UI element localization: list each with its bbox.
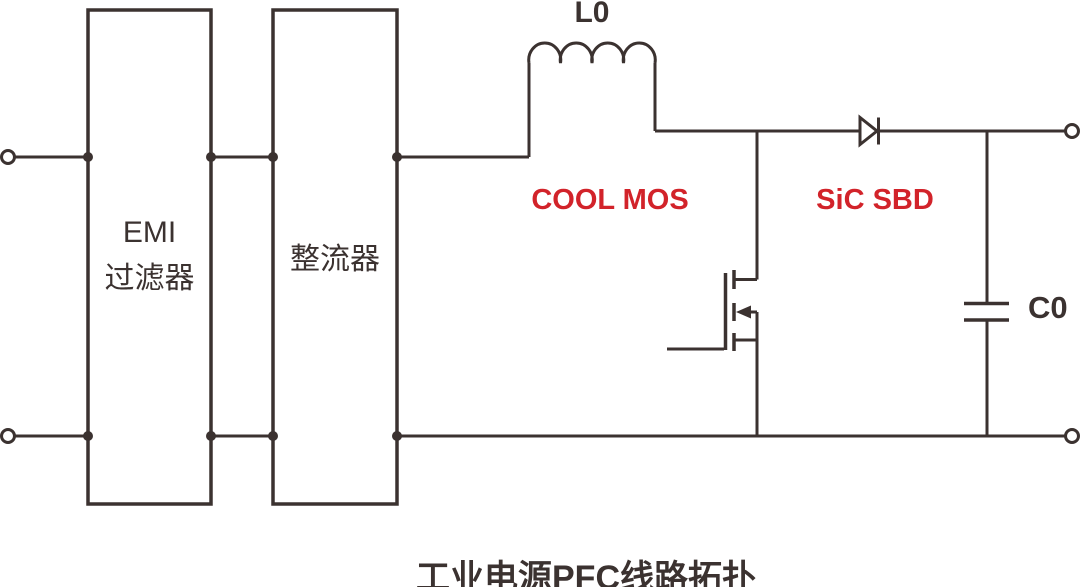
- junction-dot: [268, 152, 278, 162]
- output-terminal-top: [1066, 125, 1079, 138]
- diagram-title: 工业电源PFC线路拓扑: [386, 550, 786, 587]
- diode-label: SiC SBD: [775, 184, 975, 217]
- inductor-label: L0: [529, 0, 655, 30]
- emi-filter-label: EMI 过滤器: [88, 210, 211, 302]
- junction-dot: [392, 431, 402, 441]
- emi-filter-label-line1: EMI: [88, 210, 211, 256]
- junction-dot: [206, 431, 216, 441]
- mosfet-body-arrow: [736, 306, 751, 319]
- junction-dot: [206, 152, 216, 162]
- mosfet-symbol: [667, 131, 757, 436]
- input-terminal-bottom: [2, 430, 15, 443]
- junction-dot: [83, 152, 93, 162]
- junction-dot: [83, 431, 93, 441]
- junction-dot: [392, 152, 402, 162]
- capacitor-symbol: [964, 131, 1009, 436]
- junction-dot: [268, 431, 278, 441]
- capacitor-label: C0: [1028, 290, 1080, 326]
- diode-anode-triangle: [860, 118, 877, 145]
- pfc-circuit-diagram: L0 EMI 过滤器 整流器 COOL MOS SiC SBD C0 工业电源P…: [0, 0, 1080, 587]
- diode-symbol: [860, 118, 879, 145]
- output-terminal-bottom: [1066, 430, 1079, 443]
- emi-filter-label-line2: 过滤器: [88, 256, 211, 302]
- mosfet-label: COOL MOS: [510, 184, 710, 217]
- rectifier-label: 整流器: [273, 234, 397, 278]
- inductor-coil: [529, 43, 656, 63]
- input-terminal-top: [2, 151, 15, 164]
